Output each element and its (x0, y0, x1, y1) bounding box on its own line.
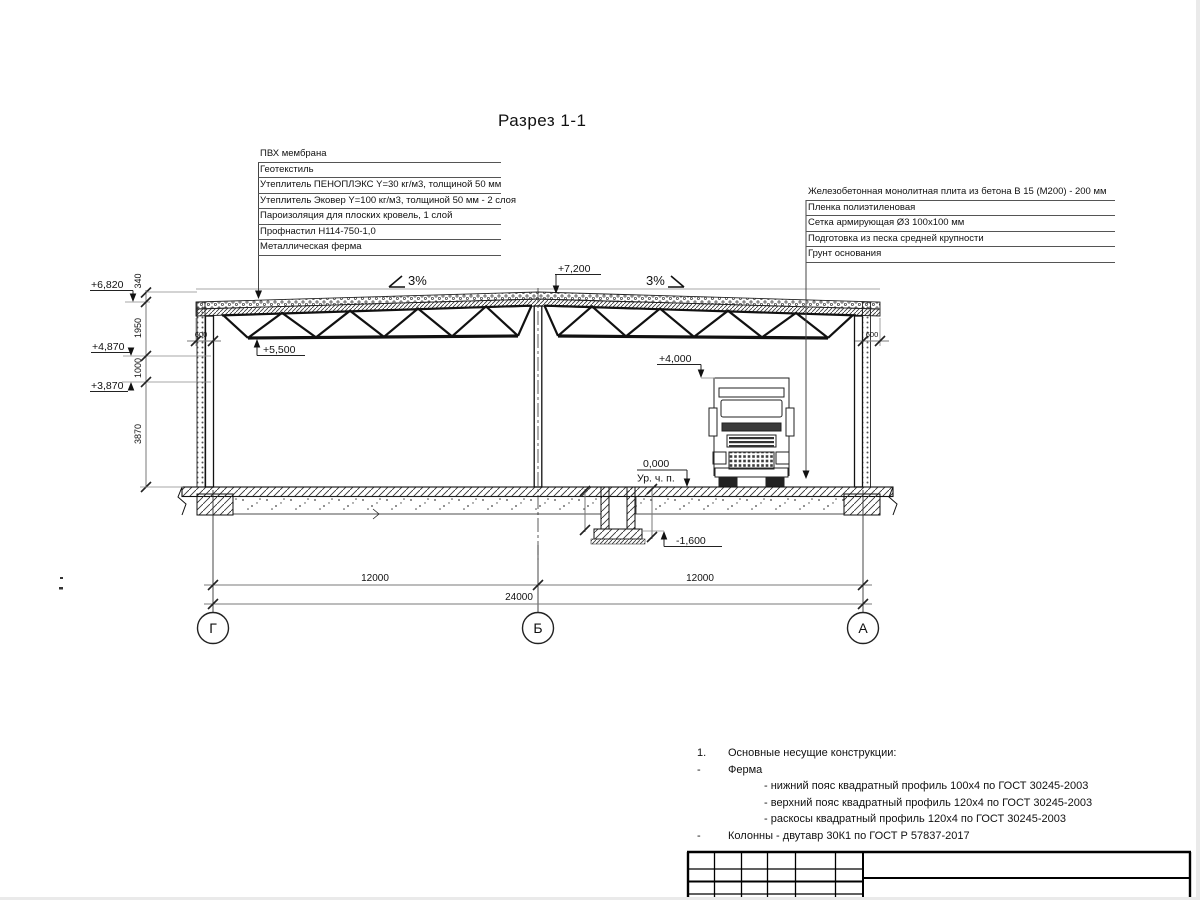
elevation-clearance-value: +4,000 (659, 353, 692, 365)
truck-headlight-left (713, 452, 726, 464)
elevation-floor-label: Ур. ч. п. (637, 473, 675, 485)
floor-topping-band (182, 487, 893, 497)
truck-windshield (721, 400, 782, 417)
floor-layer-item: Сетка армирующая Ø3 100х100 мм (806, 216, 1115, 232)
slope-right-value: 3% (646, 273, 665, 288)
slope-symbol-left (389, 276, 405, 287)
drawing-sheet: +6,820 +4,870 +3,870 +5,500 +7,200 (0, 0, 1200, 900)
truck-headlight-right (776, 452, 789, 464)
elevation-floor-value: 0,000 (643, 458, 669, 470)
elevation-eave-value: +6,820 (91, 279, 124, 291)
floor-layer-item: Грунт основания (806, 247, 1115, 263)
note-marker: - (697, 828, 728, 845)
slope-left-value: 3% (408, 273, 427, 288)
page-title: Разрез 1-1 (498, 111, 586, 131)
span-right-value: 12000 (686, 573, 714, 584)
footing-right (844, 494, 880, 515)
slab-right (636, 497, 844, 515)
pit-bedding-layer (591, 539, 645, 544)
elevation-wall-low-value: +3,870 (91, 380, 124, 392)
note-number: 1. (697, 745, 728, 762)
slope-mark-left: 3% (389, 273, 427, 288)
structural-notes: 1. Основные несущие конструкции: - Ферма… (697, 745, 1167, 845)
slab-left (233, 497, 601, 515)
roof-layer-item: Утеплитель Эковер Y=100 кг/м3, толщиной … (258, 194, 501, 210)
note-text: Колонны - двутавр 30К1 по ГОСТ Р 57837-2… (728, 828, 970, 845)
note-marker: - (697, 762, 728, 779)
vertical-dimension-chain: 340 1950 1000 3870 (133, 273, 197, 492)
elevation-wall-low: +3,870 (90, 380, 211, 392)
truck-wiper-panel (722, 423, 781, 431)
roof-layer-item: Геотекстиль (258, 163, 501, 179)
truck-wheel-right (766, 477, 784, 486)
overhang-left-value: 600 (195, 330, 208, 339)
dim-3870: 3870 (133, 424, 143, 444)
elevation-wall-mid-value: +4,870 (92, 341, 125, 353)
truck-sun-visor (719, 388, 784, 397)
elevation-truss-bottom: +5,500 (254, 339, 305, 356)
elevation-floor: 0,000 Ур. ч. п. (637, 458, 690, 487)
elevation-ridge-value: +7,200 (558, 263, 591, 275)
roof-layer-item: ПВХ мембрана (258, 147, 501, 163)
note-subitem: - нижний пояс квадратный профиль 100х4 п… (697, 778, 1167, 795)
total-span-value: 24000 (505, 592, 533, 603)
truck-mirror-right (786, 408, 794, 436)
roof-layer-item: Утеплитель ПЕНОПЛЭКС Y=30 кг/м3, толщино… (258, 178, 501, 194)
slope-symbol-right (668, 276, 684, 287)
note-subitem: - верхний пояс квадратный профиль 120х4 … (697, 795, 1167, 812)
grid-axis-bubbles: Г Б А (198, 613, 879, 644)
roof-layer-item: Пароизоляция для плоских кровель, 1 слой (258, 209, 501, 225)
truck-wheel-left (719, 477, 737, 486)
truck-grille-lower (729, 452, 774, 469)
axis-right-label: А (858, 620, 868, 636)
roof-layer-item: Профнастил Н114-750-1,0 (258, 225, 501, 241)
truck-mirror-left (709, 408, 717, 436)
floor-layer-item: Пленка полиэтиленовая (806, 201, 1115, 217)
elevation-pit: -1,600 (642, 531, 722, 547)
elevation-truss-bottom-value: +5,500 (263, 344, 296, 356)
floor-layers-callout: Железобетонная монолитная плита из бетон… (806, 185, 1115, 263)
note-text: Основные несущие конструкции: (728, 745, 896, 762)
axis-middle-label: Б (533, 620, 542, 636)
dim-340: 340 (133, 273, 143, 288)
title-block (687, 852, 1191, 900)
dim-1000: 1000 (133, 358, 143, 378)
footing-left (197, 494, 233, 515)
note-subitem: - раскосы квадратный профиль 120х4 по ГО… (697, 811, 1167, 828)
stray-dot-2 (59, 587, 63, 590)
note-text: Ферма (728, 762, 762, 779)
overhang-right-value: 600 (866, 330, 879, 339)
elevation-clearance: +4,000 (657, 353, 715, 378)
note-row: 1. Основные несущие конструкции: (697, 745, 1167, 762)
floor-slab (178, 487, 897, 519)
slope-mark-right: 3% (646, 273, 684, 288)
stray-dot-1 (60, 577, 63, 579)
floor-layer-item: Железобетонная монолитная плита из бетон… (806, 185, 1115, 201)
note-row: - Ферма (697, 762, 1167, 779)
roof-layers-callout: ПВХ мембрана Геотекстиль Утеплитель ПЕНО… (258, 147, 501, 256)
dim-1950: 1950 (133, 318, 143, 338)
floor-layer-item: Подготовка из песка средней крупности (806, 232, 1115, 248)
note-row: - Колонны - двутавр 30К1 по ГОСТ Р 57837… (697, 828, 1167, 845)
axis-left-label: Г (209, 620, 217, 636)
elevation-pit-value: -1,600 (676, 535, 706, 547)
pit-footing-pad (594, 529, 642, 539)
truck-front-view (709, 378, 794, 486)
span-left-value: 12000 (361, 573, 389, 584)
sheet-edge-right (1196, 0, 1200, 900)
roof-layer-item: Металлическая ферма (258, 240, 501, 256)
